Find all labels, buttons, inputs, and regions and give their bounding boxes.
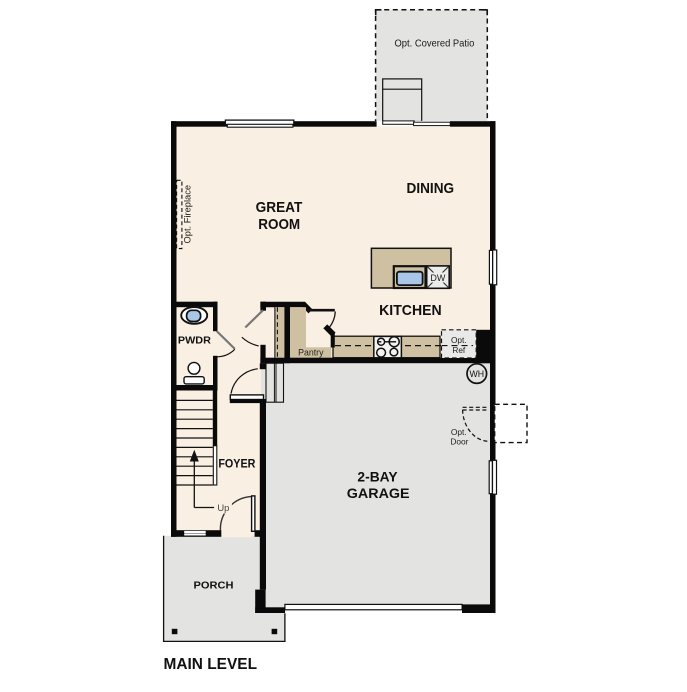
svg-text:ROOM: ROOM	[258, 216, 300, 233]
svg-text:WH: WH	[470, 369, 485, 380]
svg-text:MAIN LEVEL: MAIN LEVEL	[164, 656, 258, 673]
svg-text:GARAGE: GARAGE	[347, 486, 410, 501]
svg-text:Ref: Ref	[452, 345, 466, 355]
svg-text:Opt.: Opt.	[451, 335, 467, 345]
svg-text:2-BAY: 2-BAY	[357, 470, 397, 485]
svg-text:KITCHEN: KITCHEN	[379, 302, 442, 319]
svg-text:Pantry: Pantry	[298, 348, 324, 358]
svg-text:Opt. Covered Patio: Opt. Covered Patio	[395, 39, 475, 50]
svg-text:PORCH: PORCH	[194, 581, 234, 592]
svg-text:DW: DW	[430, 273, 445, 283]
svg-text:Door: Door	[450, 436, 468, 446]
svg-text:Up: Up	[217, 502, 229, 513]
svg-text:GREAT: GREAT	[256, 199, 303, 216]
svg-text:Opt.: Opt.	[451, 427, 467, 437]
svg-text:FOYER: FOYER	[218, 457, 256, 471]
svg-text:DINING: DINING	[407, 180, 455, 197]
svg-text:PWDR: PWDR	[178, 335, 211, 346]
svg-text:Opt. Fireplace: Opt. Fireplace	[181, 185, 192, 244]
